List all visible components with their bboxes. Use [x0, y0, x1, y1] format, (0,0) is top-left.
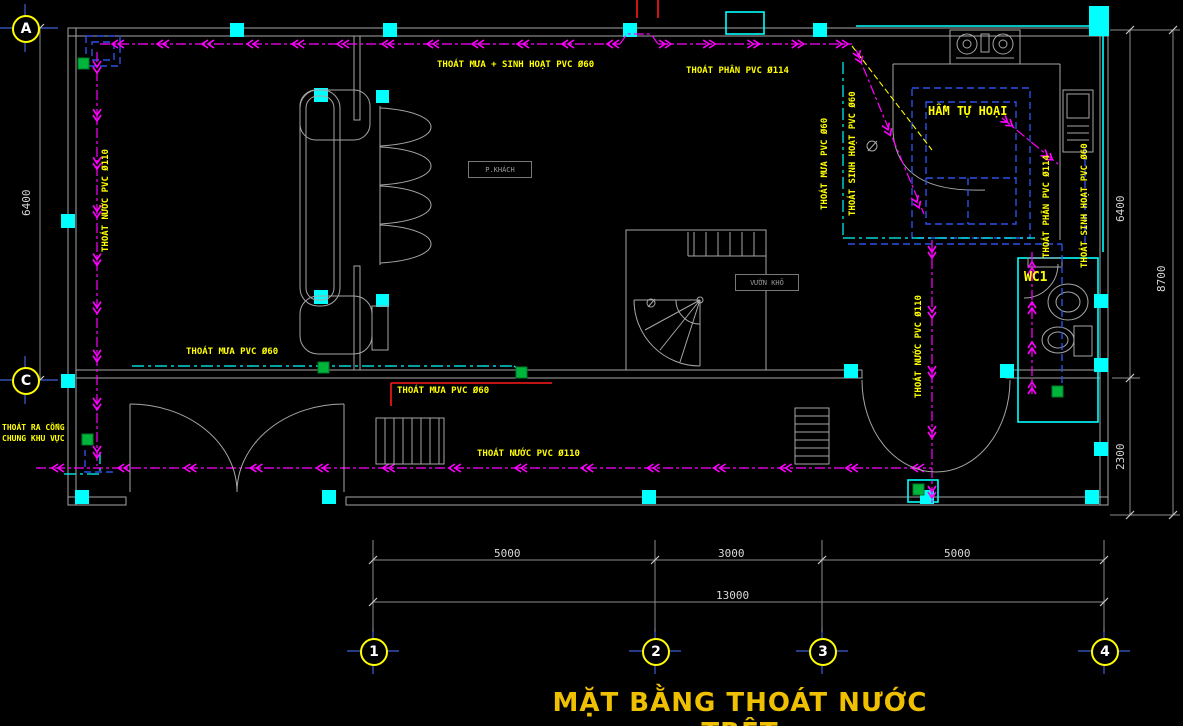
grid-bubble-4: 4	[1091, 638, 1119, 666]
sofa	[300, 90, 431, 354]
pipe-label-water-right: THOÁT NƯỚC PVC Ø110	[914, 295, 924, 398]
pipe-label-rain-domestic: THOÁT MƯA + SINH HOẠT PVC Ø60	[437, 60, 594, 70]
grate-left	[376, 418, 444, 464]
cad-sheet: THOÁT MƯA + SINH HOẠT PVC Ø60 THOÁT PHÂN…	[0, 0, 1183, 726]
dim-left-height: 6400	[20, 190, 33, 217]
spiral-stair	[634, 232, 766, 366]
grid-bubble-2: 2	[642, 638, 670, 666]
dim-seg1: 5000	[494, 547, 521, 560]
grid-bubble-1: 1	[360, 638, 388, 666]
drawing-title: MẶT BẰNG THOÁT NƯỚC TRỆT	[520, 688, 960, 726]
pipe-label-domestic-wc: THOÁT SINH HOẠT PVC Ø60	[1080, 143, 1090, 268]
grid-bubble-3: 3	[809, 638, 837, 666]
dim-seg2: 3000	[718, 547, 745, 560]
dimension-lines	[40, 28, 1180, 632]
septic-tank-label: HẦM TỰ HOẠI	[928, 104, 1007, 118]
dim-right-lower: 2300	[1114, 444, 1127, 471]
grate-right	[795, 408, 829, 464]
room-label-living: P.KHÁCH	[468, 161, 532, 178]
walls	[68, 28, 1108, 505]
drain-boxes	[78, 58, 1063, 495]
flow-lines	[36, 34, 1058, 505]
pipe-label-water-left: THOÁT NƯỚC PVC Ø110	[101, 149, 111, 252]
diagonal-line-yellow	[852, 46, 932, 150]
pipe-label-rain-right: THOÁT MƯA PVC Ø60	[820, 118, 830, 210]
grid-bubble-a: A	[12, 15, 40, 43]
dim-seg3: 5000	[944, 547, 971, 560]
columns	[61, 6, 1109, 504]
sewer-out-label-1: THOÁT RA CỐNG	[2, 423, 65, 432]
room-label-dry-yard: VƯỜN KHÔ	[735, 274, 799, 291]
waste-pipes	[85, 148, 1085, 472]
pipe-label-domestic-right: THOÁT SINH HOẠT PVC Ø60	[848, 91, 858, 216]
pipe-label-soil-wc: THOÁT PHÂN PVC Ø114	[1042, 155, 1052, 258]
dim-right-upper: 6400	[1114, 196, 1127, 223]
dim-right-total: 8700	[1155, 266, 1168, 293]
pipe-label-water-bottom: THOÁT NƯỚC PVC Ø110	[477, 449, 580, 459]
pipe-label-soil-top: THOÁT PHÂN PVC Ø114	[686, 66, 789, 76]
double-door-left	[130, 404, 344, 492]
dim-total: 13000	[716, 589, 749, 602]
wc1-label: WC1	[1024, 270, 1047, 285]
grid-bubble-c: C	[12, 367, 40, 395]
pipe-label-rain-mid: THOÁT MƯA PVC Ø60	[186, 347, 278, 357]
pipe-label-rain-ramp: THOÁT MƯA PVC Ø60	[397, 386, 489, 396]
stove-icon	[950, 30, 1020, 64]
sewer-out-label-2: CHUNG KHU VỰC	[2, 434, 65, 443]
